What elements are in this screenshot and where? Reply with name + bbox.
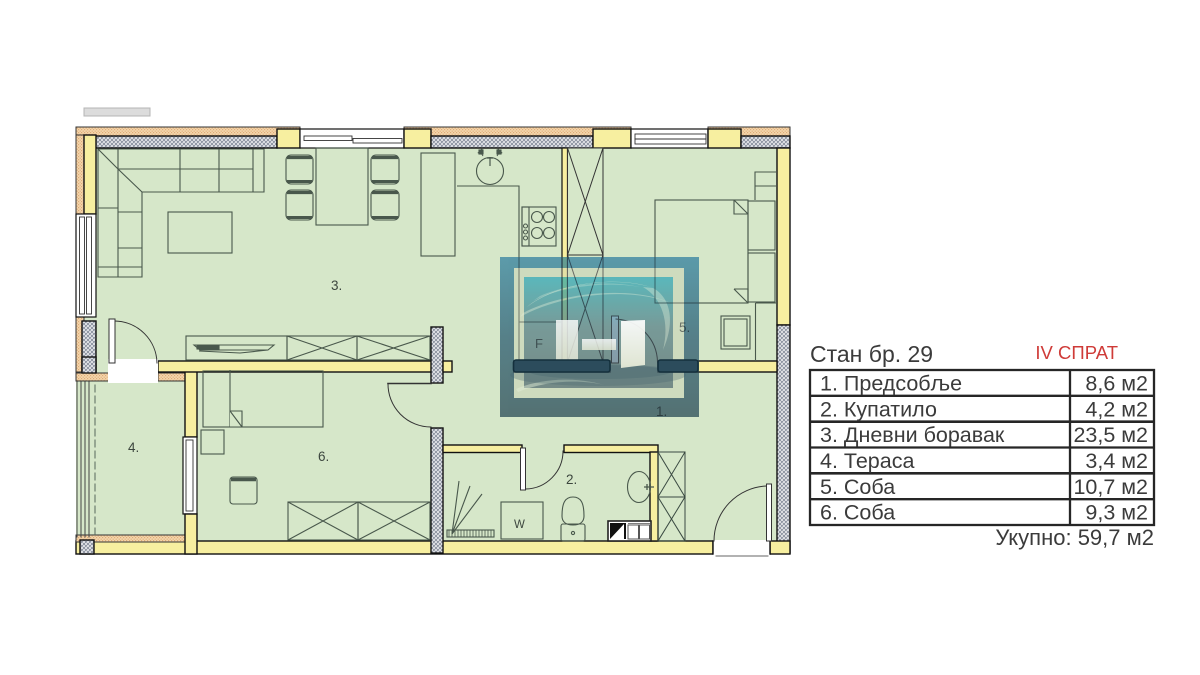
svg-text:6.: 6. xyxy=(318,449,329,464)
svg-text:10,7 м2: 10,7 м2 xyxy=(1073,475,1148,499)
svg-text:3.: 3. xyxy=(331,278,342,293)
svg-text:Стан бр. 29: Стан бр. 29 xyxy=(810,341,933,367)
svg-text:IV СПРАТ: IV СПРАТ xyxy=(1035,342,1118,363)
svg-text:3. Дневни боравак: 3. Дневни боравак xyxy=(820,423,1005,447)
svg-text:23,5 м2: 23,5 м2 xyxy=(1073,423,1148,447)
svg-text:1. Предсобље: 1. Предсобље xyxy=(820,372,962,396)
svg-text:8,6 м2: 8,6 м2 xyxy=(1085,372,1148,396)
svg-text:4,2 м2: 4,2 м2 xyxy=(1085,397,1148,421)
svg-text:W: W xyxy=(514,519,525,531)
svg-text:6. Соба: 6. Соба xyxy=(820,501,895,525)
svg-text:2.: 2. xyxy=(566,472,577,487)
svg-text:4. Тераса: 4. Тераса xyxy=(820,449,914,473)
svg-text:3,4 м2: 3,4 м2 xyxy=(1085,449,1148,473)
svg-text:9,3 м2: 9,3 м2 xyxy=(1085,501,1148,525)
svg-text:5. Соба: 5. Соба xyxy=(820,475,895,499)
svg-text:Укупно: 59,7 м2: Укупно: 59,7 м2 xyxy=(995,525,1154,550)
svg-text:4.: 4. xyxy=(128,440,139,455)
svg-text:2. Купатило: 2. Купатило xyxy=(820,397,937,421)
